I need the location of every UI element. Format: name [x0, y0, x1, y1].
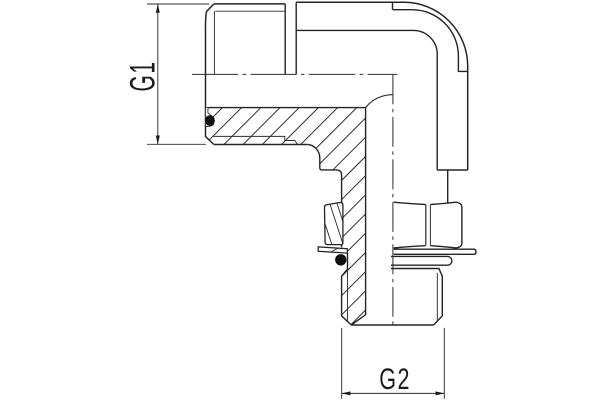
svg-text:G1: G1	[124, 60, 163, 91]
svg-text:G2: G2	[379, 362, 411, 396]
